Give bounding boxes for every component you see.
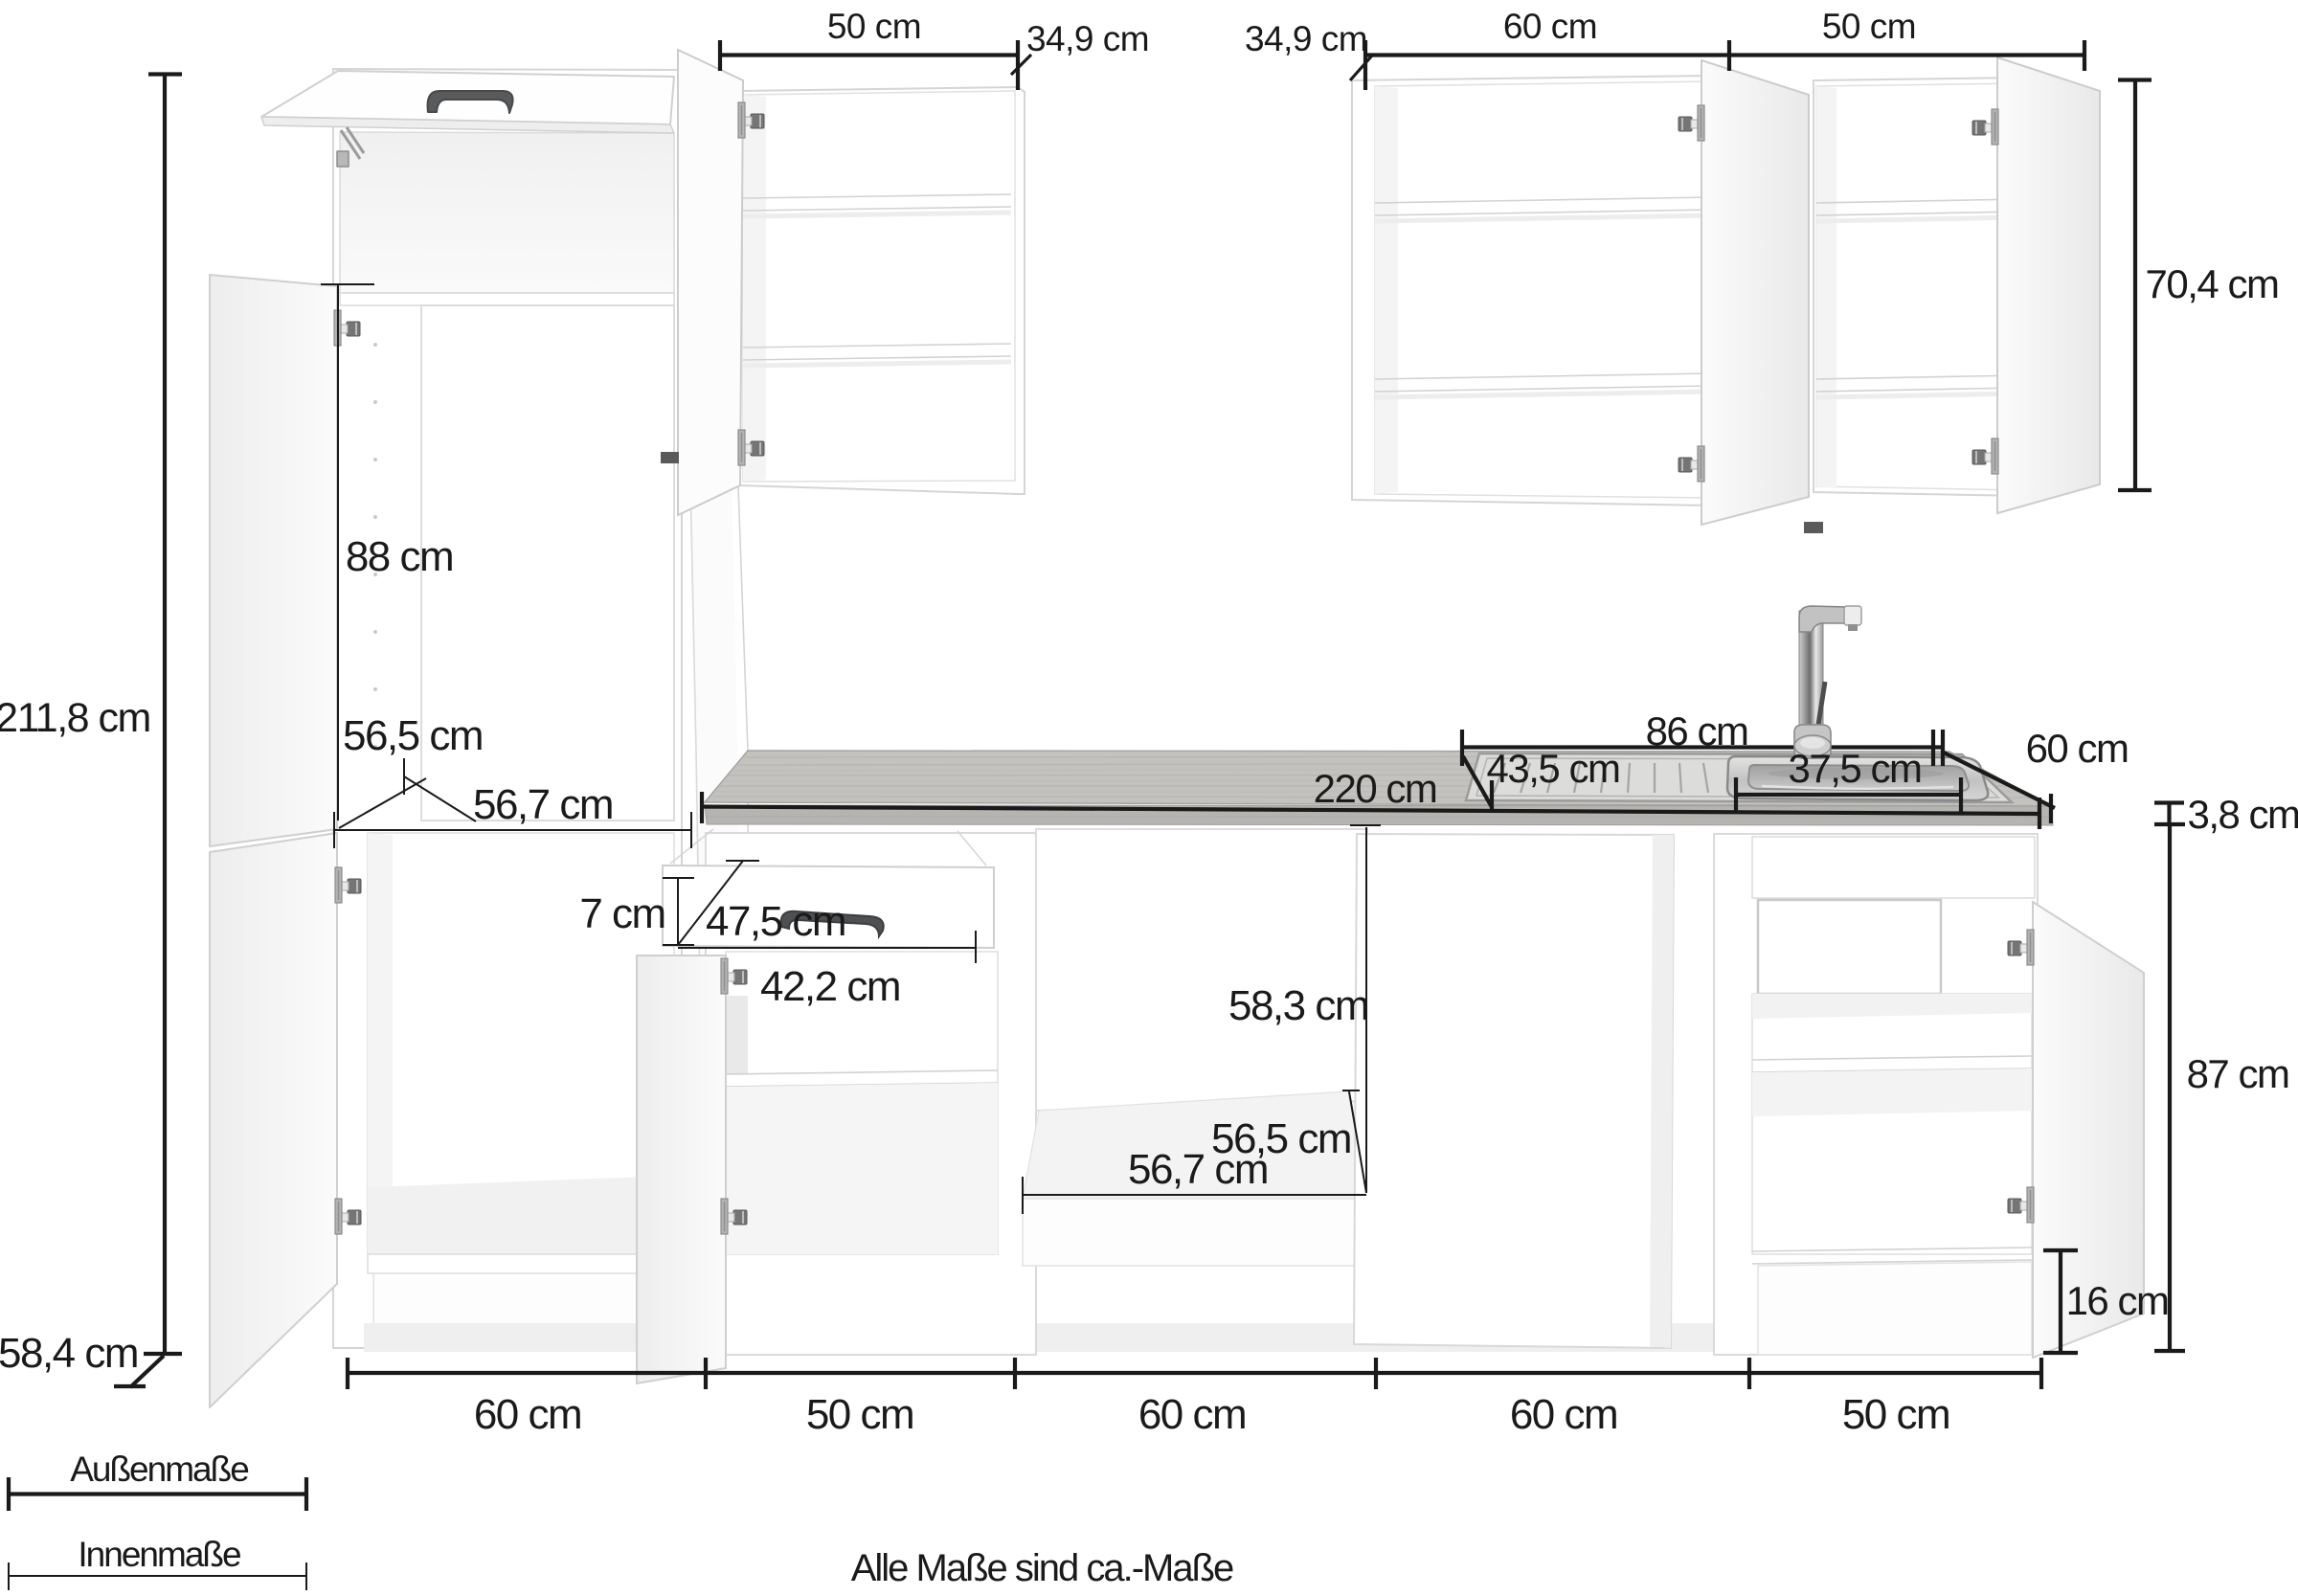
svg-text:50 cm: 50 cm: [1842, 1391, 1949, 1438]
svg-text:50 cm: 50 cm: [1822, 7, 1916, 46]
svg-text:7 cm: 7 cm: [579, 890, 665, 937]
svg-text:50 cm: 50 cm: [827, 7, 921, 46]
svg-text:47,5 cm: 47,5 cm: [706, 898, 845, 945]
svg-text:34,9 cm: 34,9 cm: [1245, 19, 1367, 58]
svg-text:56,7 cm: 56,7 cm: [473, 781, 613, 828]
svg-text:43,5 cm: 43,5 cm: [1487, 746, 1620, 791]
svg-text:60 cm: 60 cm: [1510, 1391, 1617, 1438]
svg-text:16 cm: 16 cm: [2066, 1278, 2169, 1323]
svg-text:56,7 cm: 56,7 cm: [1128, 1146, 1268, 1193]
svg-text:60 cm: 60 cm: [474, 1391, 581, 1438]
svg-text:220 cm: 220 cm: [1314, 766, 1437, 811]
svg-text:58,4 cm: 58,4 cm: [0, 1330, 138, 1377]
svg-text:86 cm: 86 cm: [1646, 708, 1748, 753]
svg-text:70,4 cm: 70,4 cm: [2146, 261, 2279, 306]
svg-text:3,8 cm: 3,8 cm: [2187, 792, 2298, 837]
svg-text:87 cm: 87 cm: [2187, 1051, 2289, 1096]
svg-text:60 cm: 60 cm: [1503, 7, 1597, 46]
svg-text:34,9 cm: 34,9 cm: [1026, 19, 1149, 58]
svg-text:88 cm: 88 cm: [346, 533, 453, 580]
svg-text:37,5 cm: 37,5 cm: [1789, 746, 1922, 791]
svg-text:Alle Maße sind ca.-Maße: Alle Maße sind ca.-Maße: [851, 1547, 1233, 1589]
svg-text:60 cm: 60 cm: [1138, 1391, 1246, 1438]
svg-text:Innenmaße: Innenmaße: [78, 1535, 240, 1574]
svg-text:56,5 cm: 56,5 cm: [343, 712, 483, 759]
svg-text:60 cm: 60 cm: [2026, 726, 2129, 771]
svg-text:58,3 cm: 58,3 cm: [1228, 982, 1368, 1029]
svg-text:Außenmaße: Außenmaße: [70, 1450, 248, 1489]
svg-text:50 cm: 50 cm: [806, 1391, 913, 1438]
svg-text:211,8 cm: 211,8 cm: [0, 695, 150, 741]
svg-text:42,2 cm: 42,2 cm: [760, 963, 900, 1010]
